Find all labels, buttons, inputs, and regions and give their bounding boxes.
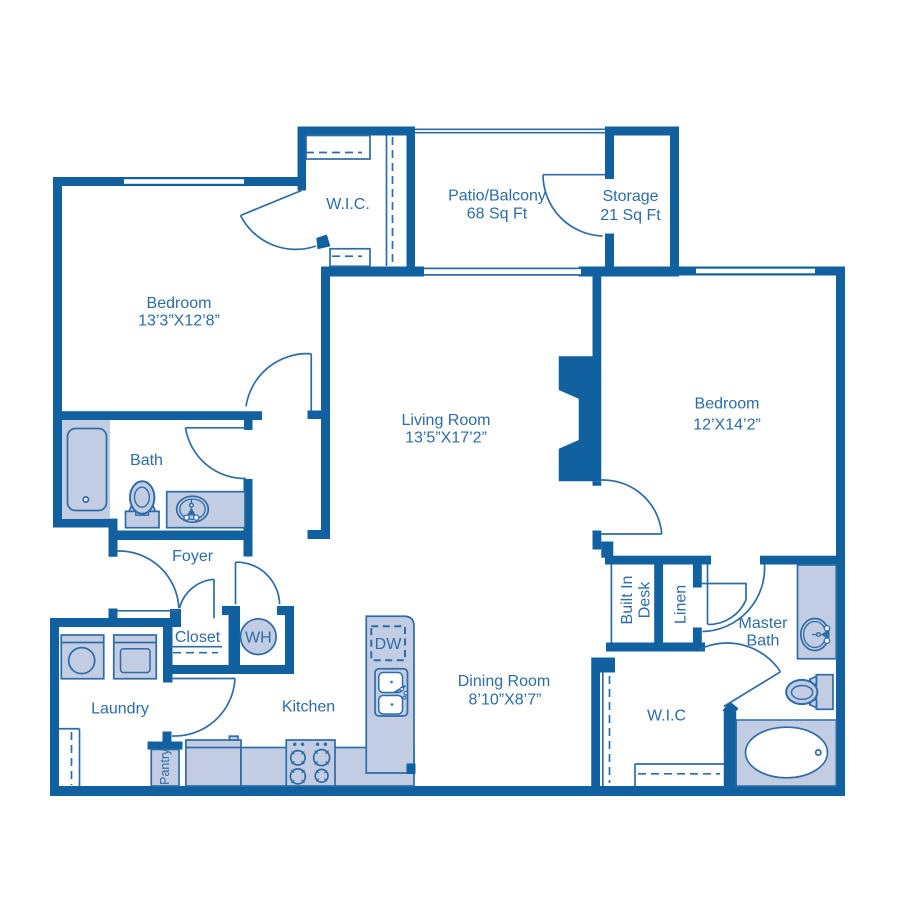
svg-text:WH: WH [245,630,272,647]
svg-text:DW: DW [375,636,403,653]
svg-text:21 Sq Ft: 21 Sq Ft [600,207,661,224]
svg-text:Patio/Balcony: Patio/Balcony [448,187,546,204]
svg-text:12’X14’2”: 12’X14’2” [693,416,761,433]
svg-text:Dining Room: Dining Room [458,673,550,690]
svg-text:Storage: Storage [602,188,658,205]
svg-text:13’5”X17’2”: 13’5”X17’2” [405,430,487,447]
svg-text:Bedroom: Bedroom [695,396,760,413]
svg-text:Linen: Linen [673,585,690,624]
svg-text:Bath: Bath [747,633,780,650]
svg-text:Closet: Closet [175,629,221,646]
svg-text:68 Sq Ft: 68 Sq Ft [467,206,528,223]
svg-text:Foyer: Foyer [172,548,214,565]
svg-text:13’3”X12’8”: 13’3”X12’8” [138,312,220,329]
svg-text:8’10”X8’7”: 8’10”X8’7” [469,691,542,708]
svg-text:Bath: Bath [130,452,163,469]
svg-text:Built In: Built In [619,576,636,625]
svg-text:Bedroom: Bedroom [147,295,212,312]
svg-text:Pantry: Pantry [158,748,172,785]
svg-text:W.I.C: W.I.C [647,708,686,725]
svg-text:Master: Master [739,615,789,632]
svg-text:Laundry: Laundry [91,701,149,718]
svg-text:Kitchen: Kitchen [282,699,335,716]
svg-text:Desk: Desk [637,581,654,618]
svg-text:Living Room: Living Room [402,412,491,429]
svg-text:W.I.C.: W.I.C. [326,196,370,213]
